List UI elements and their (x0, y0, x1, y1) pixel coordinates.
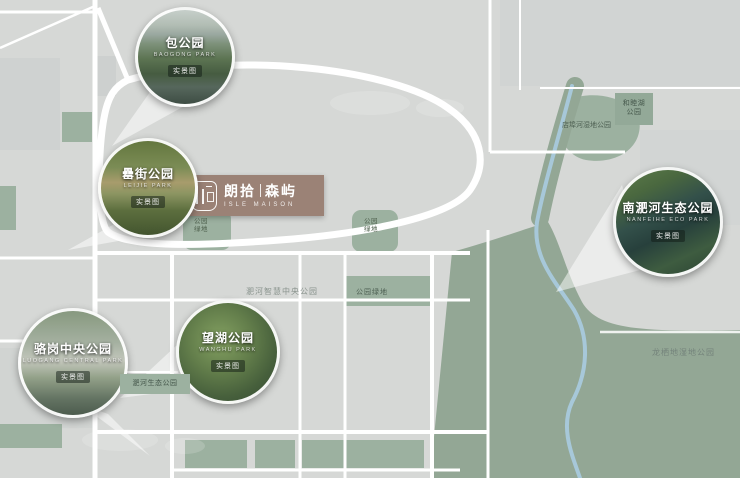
label-pocket-park-a-line2: 绿地 (194, 226, 208, 234)
park-photo-leijie: 罍街公园 LEIJIE PARK 实景图 (98, 138, 198, 238)
park-photo-label: 望湖公园 (202, 332, 254, 345)
park-photo-subtitle: LUOGANG CENTRAL PARK (23, 358, 124, 364)
park-photo-baogongyuan: 包公园 BAOGONG PARK 实景图 (135, 7, 235, 107)
park-photo-nanfeihe: 南淝河生态公园 NANFEIHE ECO PARK 实景图 (613, 167, 723, 277)
label-pocket-park-a: 公园 绿地 (194, 218, 208, 235)
label-pocket-park-b: 公园 绿地 (364, 218, 378, 235)
scene-badge: 实景图 (56, 371, 90, 383)
park-photo-subtitle: WANGHU PARK (199, 347, 256, 353)
label-feihe-eco-park: 淝河生态公园 (120, 374, 190, 394)
park-photo-subtitle: BAOGONG PARK (154, 52, 217, 58)
park-photo-label: 南淝河生态公园 (622, 202, 713, 215)
park-photo-subtitle: NANFEIHE ECO PARK (627, 217, 710, 223)
label-feihe-smart-central-park: 淝河智慧中央公园 (246, 286, 318, 297)
brand-name-left: 朗拾 (224, 184, 256, 198)
label-park-greenland: 公园绿地 (356, 287, 388, 297)
park-photo-label: 包公园 (165, 37, 204, 50)
label-dianbuhe-wetland-park: 店埠河湿地公园 (562, 120, 611, 130)
scene-badge: 实景图 (651, 230, 685, 242)
park-photo-wanghu: 望湖公园 WANGHU PARK 实景图 (176, 300, 280, 404)
label-hemuhu-park: 和睦湖 公园 (615, 93, 653, 125)
label-hemuhu-line2: 公园 (627, 109, 642, 118)
scene-badge: 实景图 (131, 196, 165, 208)
label-hemuhu-line1: 和睦湖 (623, 100, 646, 109)
brand-name-right: 森屿 (265, 184, 297, 198)
park-photo-label: 罍街公园 (122, 168, 174, 181)
location-map: 朗拾 森屿 ISLE MAISON 包公园 BAOGONG PARK 实景图 罍… (0, 0, 740, 478)
scene-badge: 实景图 (168, 65, 202, 77)
label-pocket-park-b-line2: 绿地 (364, 226, 378, 234)
park-photo-luogang: 骆岗中央公园 LUOGANG CENTRAL PARK 实景图 (18, 308, 128, 418)
scene-badge: 实景图 (211, 360, 245, 372)
park-photo-subtitle: LEIJIE PARK (124, 183, 173, 189)
brand-english: ISLE MAISON (224, 202, 297, 208)
park-photo-label: 骆岗中央公园 (34, 343, 112, 356)
brand-name: 朗拾 森屿 (224, 184, 297, 198)
label-longqidi-wetland-park: 龙栖地湿地公园 (652, 347, 715, 358)
label-feihe-eco-park-text: 淝河生态公园 (133, 380, 178, 389)
brand-plate: 朗拾 森屿 ISLE MAISON (183, 175, 324, 216)
brand-name-divider-icon (260, 184, 261, 197)
